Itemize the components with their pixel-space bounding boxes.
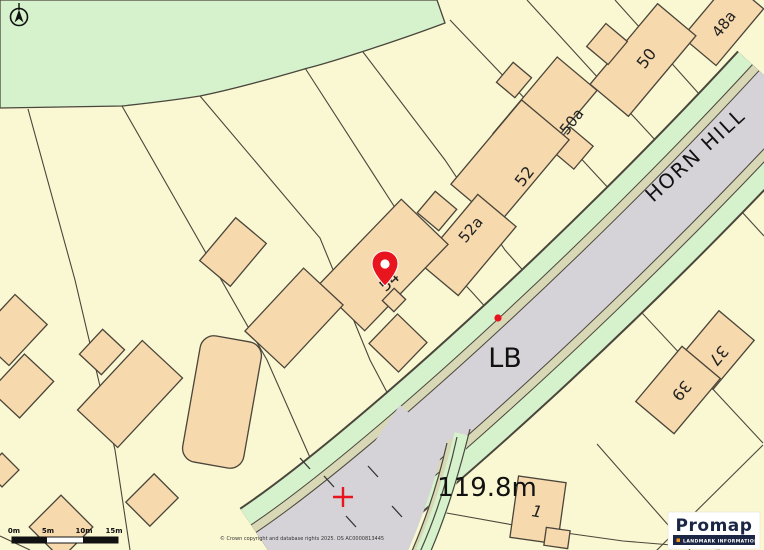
promap-logo-text: Promap: [676, 516, 753, 536]
spot-height-label: 119.8m: [437, 473, 537, 503]
logo-orange-square-icon: [677, 539, 681, 543]
scale-tick-5: 5m: [42, 527, 54, 535]
scale-tick-10: 10m: [75, 527, 92, 535]
map-canvas[interactable]: HORN HILL LB 48a 50 50a 52 52a: [0, 0, 764, 550]
promap-logo: Promap LANDMARK INFORMATION: [668, 512, 760, 549]
copyright-text: © Crown copyright and database rights 20…: [220, 535, 384, 542]
scale-tick-0: 0m: [8, 527, 20, 535]
scale-tick-15: 15m: [105, 527, 122, 535]
landmark-tagline: LANDMARK INFORMATION: [683, 539, 758, 545]
building-1-annex: [544, 527, 570, 548]
red-dot-marker: [494, 314, 501, 321]
letter-box-label: LB: [488, 343, 522, 374]
